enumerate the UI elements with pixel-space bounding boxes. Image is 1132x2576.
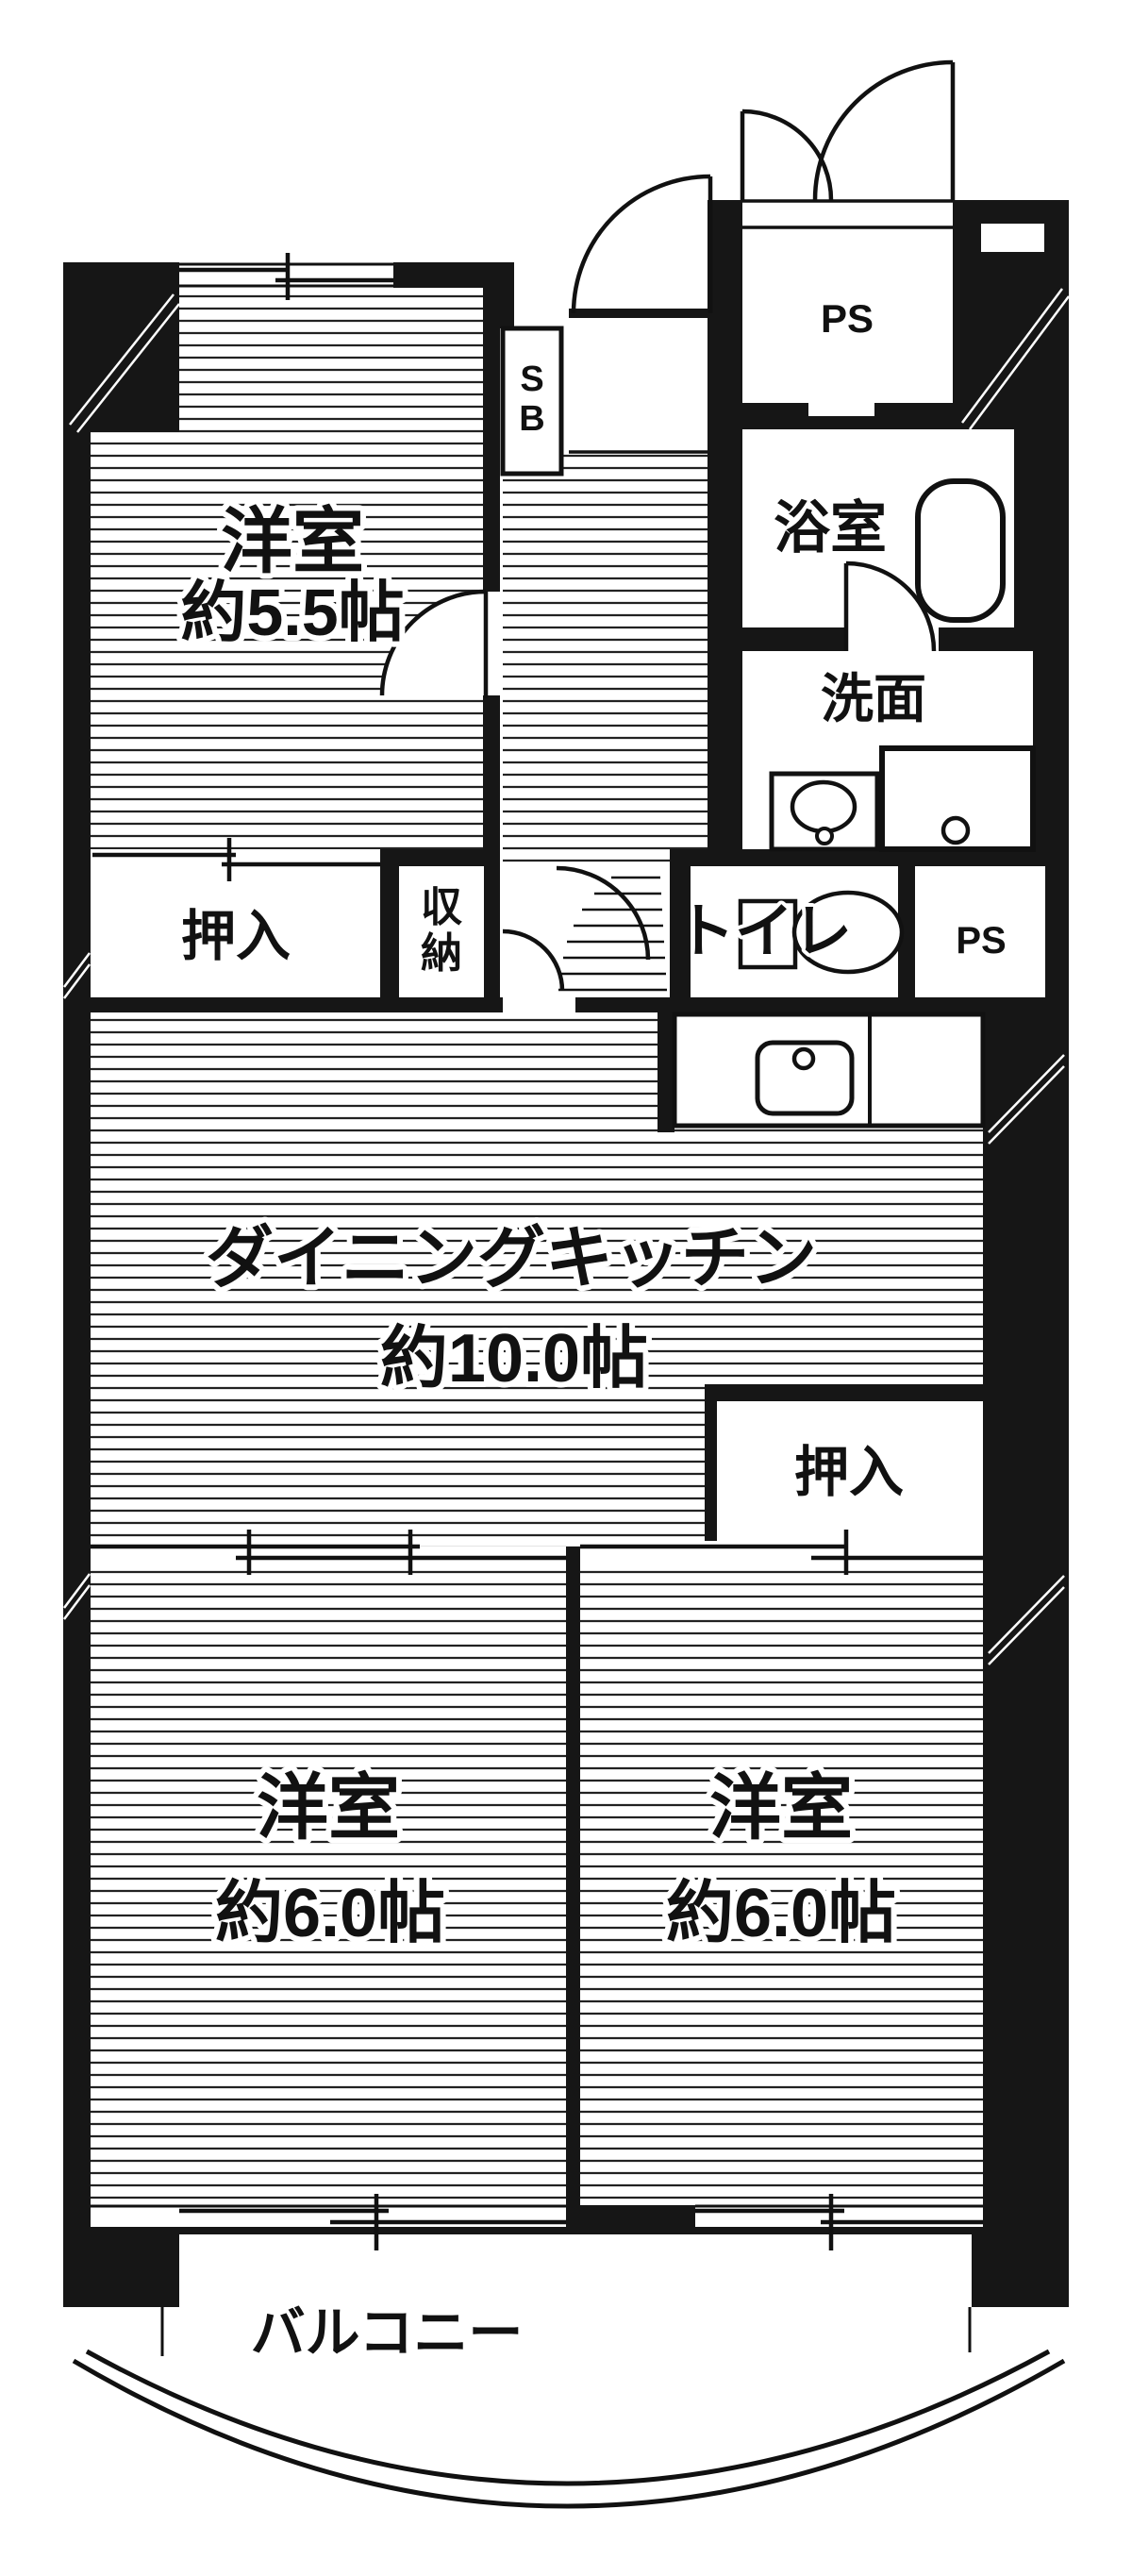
wall-above-storage — [380, 849, 500, 866]
wall-closet-storage — [380, 866, 399, 997]
wall-left — [63, 262, 91, 2232]
balcony-pillar-right — [972, 2232, 1069, 2307]
meter-box-niche — [981, 224, 1044, 252]
bedroom-right-name: 洋室 — [709, 1768, 853, 1848]
wall-closet-right-left — [705, 1401, 717, 1541]
wall-dk-top — [91, 997, 1069, 1012]
floorplan-drawing: 洋室 約5.5帖 PS S B 浴室 洗面 押入 収 納 トイレ PS ダイニン… — [0, 0, 1132, 2576]
balcony-label: バルコニー — [251, 2302, 524, 2364]
shoe-box-label-s: S — [520, 360, 543, 399]
wall-closet-right-top — [705, 1384, 983, 1401]
ps-vent-opening — [808, 403, 874, 416]
bathtub-icon — [918, 481, 1003, 620]
hall-dk-opening — [503, 997, 575, 1012]
wall-entrance-threshold — [569, 309, 710, 318]
balcony-pillar-left — [63, 2232, 179, 2307]
closet-right-label: 押入 — [794, 1442, 904, 1503]
wall-storage-hall — [484, 866, 500, 997]
wall-right-main — [983, 1012, 1069, 2232]
washer-drain-icon — [943, 818, 968, 843]
bedroom-top-size: 約5.5帖 — [180, 576, 404, 649]
bedroom-right-size: 約6.0帖 — [666, 1876, 896, 1951]
vanity-basin-icon — [792, 782, 855, 831]
vanity-drain-icon — [817, 828, 832, 844]
storage-label-1: 収 — [421, 884, 462, 930]
wall-bottom-center — [566, 2205, 695, 2233]
wall-bedroom-divider — [566, 1547, 580, 2216]
bedroom-top-name: 洋室 — [221, 502, 364, 582]
storage-label-2: 納 — [421, 930, 462, 977]
corridor-floor — [503, 453, 707, 866]
wall-kitchen-stub — [658, 1012, 674, 1132]
toilet-label: トイレ — [676, 899, 852, 964]
bedroom-left-size: 約6.0帖 — [215, 1876, 445, 1951]
wall-hall-east — [707, 200, 742, 866]
dk-name: ダイニングキッチン — [206, 1221, 817, 1296]
wall-bedroom-top-right-lower — [483, 695, 500, 866]
wall-right-toilet-row — [1045, 849, 1069, 1012]
wall-bedroom-top-right-upper — [483, 262, 500, 592]
kitchen-faucet-icon — [794, 1049, 813, 1068]
shoe-box-label-b: B — [519, 399, 544, 439]
ps-top-label: PS — [821, 296, 874, 341]
closet-top-label: 押入 — [181, 906, 291, 967]
washroom-label: 洗面 — [821, 669, 926, 728]
dk-size: 約10.0帖 — [380, 1321, 648, 1397]
wall-step-entrance — [498, 262, 514, 328]
wall-bottom — [91, 2227, 983, 2234]
wall-right-washroom — [1033, 651, 1069, 849]
ps-mid-label: PS — [956, 920, 1006, 962]
ps-door-opening — [742, 200, 953, 228]
floorplan-page: 洋室 約5.5帖 PS S B 浴室 洗面 押入 収 納 トイレ PS ダイニン… — [0, 0, 1132, 2576]
bath-label: 浴室 — [774, 496, 887, 560]
bedroom-left-name: 洋室 — [257, 1768, 400, 1848]
kitchen-counter — [674, 1014, 983, 1126]
wall-right-bath — [1014, 429, 1069, 651]
bath-door-opening — [844, 627, 939, 651]
